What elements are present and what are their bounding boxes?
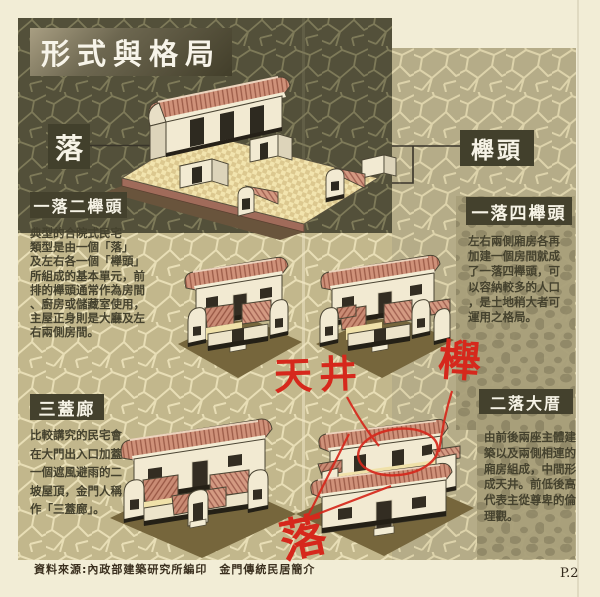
section-title-yi-luo-si-ju-tou: 一落四櫸頭 xyxy=(466,197,572,225)
diagram-label-luo: 落 xyxy=(48,124,90,169)
body-line: 排的櫸頭通常作為房間 xyxy=(30,283,145,297)
body-line: 代表主從尊卑的倫 xyxy=(484,493,576,509)
annotation-ju: 櫸 xyxy=(437,340,483,386)
section-title-text: 二落大厝 xyxy=(490,390,562,414)
brochure-page: 形式與格局 落 櫸頭 一落二櫸頭 典型的合院式民宅 類型是由一個「落」 及左右各… xyxy=(0,0,600,597)
body-line: 理觀。 xyxy=(484,509,576,525)
page-edge-shadow xyxy=(577,0,579,597)
section-title-yi-luo-er-ju-tou: 一落二櫸頭 xyxy=(30,192,127,218)
diagram-label-luo-text: 落 xyxy=(55,127,83,167)
body-line: 比較講究的民宅會 xyxy=(30,426,122,445)
body-line: 主屋正身則是大廳及左 xyxy=(30,311,145,325)
body-line: 及左右各一個「櫸頭」 xyxy=(30,254,145,268)
body-line: 加建一個房間就成 xyxy=(468,249,560,264)
annotation-luo: 落 xyxy=(276,511,331,566)
page-number: P.2 xyxy=(560,566,579,581)
page-title: 形式與格局 xyxy=(41,31,221,73)
body-line: 運用之格局。 xyxy=(468,310,560,325)
body-line: 了一落四櫸頭，可 xyxy=(468,264,560,279)
section-body-er-luo-da-cuo: 由前後兩座主體建 築以及兩側相連的 廂房組成，中間形 成天井。前低後高 代表主從… xyxy=(484,430,576,525)
body-line: 以容納較多的人口 xyxy=(468,280,560,295)
body-line: 類型是由一個「落」 xyxy=(30,240,145,254)
body-line: 在大門出入口加蓋 xyxy=(30,445,122,464)
body-line: 、廚房或儲藏室使用， xyxy=(30,297,145,311)
annotation-tianjing: 天井 xyxy=(273,354,364,395)
section-body-san-gai-lang: 比較講究的民宅會 在大門出入口加蓋 一個遮風避雨的二 坡屋頂，金門人稱 作「三蓋… xyxy=(30,426,122,519)
body-line: 成天井。前低後高 xyxy=(484,477,576,493)
section-title-er-luo-da-cuo: 二落大厝 xyxy=(479,389,573,414)
diagram-label-ju-tou-text: 櫸頭 xyxy=(471,131,523,165)
body-line: ，是土地稍大者可 xyxy=(468,295,560,310)
section-title-text: 一落二櫸頭 xyxy=(33,193,123,217)
section-title-san-gai-lang: 三蓋廊 xyxy=(30,394,104,420)
body-line: 所組成的基本單元，前 xyxy=(30,269,145,283)
body-line: 由前後兩座主體建 xyxy=(484,430,576,446)
body-line: 左右兩側廂房各再 xyxy=(468,234,560,249)
section-body-yi-luo-si-ju-tou: 左右兩側廂房各再 加建一個房間就成 了一落四櫸頭，可 以容納較多的人口 ，是土地… xyxy=(468,234,560,325)
body-line: 右兩側房間。 xyxy=(30,325,145,339)
body-line: 築以及兩側相連的 xyxy=(484,446,576,462)
body-line: 作「三蓋廊」。 xyxy=(30,500,122,519)
source-credit: 資料來源:內政部建築研究所編印 金門傳統民居簡介 xyxy=(34,561,315,577)
body-line: 坡屋頂，金門人稱 xyxy=(30,482,122,501)
body-line: 廂房組成，中間形 xyxy=(484,462,576,478)
body-line: 典型的合院式民宅 xyxy=(30,226,145,240)
section-title-text: 一落四櫸頭 xyxy=(472,199,567,224)
section-body-yi-luo-er-ju-tou: 典型的合院式民宅 類型是由一個「落」 及左右各一個「櫸頭」 所組成的基本單元，前… xyxy=(30,226,145,340)
body-line: 一個遮風避雨的二 xyxy=(30,463,122,482)
diagram-label-ju-tou: 櫸頭 xyxy=(460,130,534,166)
section-title-text: 三蓋廊 xyxy=(39,395,96,420)
page-title-banner: 形式與格局 xyxy=(30,28,232,76)
